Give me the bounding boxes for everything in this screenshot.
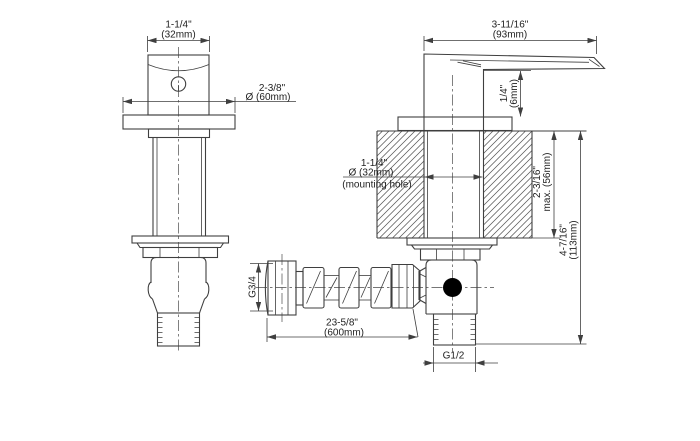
dim-mounting-hole-metric: Ø (32mm) [349,168,394,179]
backing-washer-side [407,238,497,245]
dim-lever-length: 3-11/16" (93mm) [424,20,597,55]
dim-handle-width-metric: (32mm) [161,30,195,41]
backing-washer-front [132,236,229,243]
hose-collar [296,272,303,306]
dim-wall-depth: 2-3/16" max. (56mm) [532,131,560,238]
lever-surface-marks [458,61,482,67]
dim-lever-length-metric: (93mm) [493,30,527,41]
mounting-nut-side [421,249,481,260]
dim-outlet-thread-value: G1/2 [443,351,465,362]
side-view [377,54,605,345]
escutcheon-base-front [149,129,210,138]
wall-hatch-right [484,132,532,238]
dim-outlet-thread: G1/2 [423,347,498,372]
dim-lever-clearance: 1/4" (6mm) [484,71,531,117]
hose-nut-g34 [265,261,296,315]
mounting-nut-front [143,248,218,258]
centerlines [179,47,495,352]
front-view [123,55,235,346]
dim-hose-nut-thread-value: G3/4 [248,276,259,298]
escutcheon-front [123,115,235,129]
body-cylinder-front [153,138,206,237]
dim-overall-depth-metric: (113mm) [569,220,580,259]
washer-lip-front [137,243,224,248]
escutcheon-side [398,117,512,131]
washer-lip-side [412,245,493,249]
outlet-thread-side [434,314,476,345]
technical-drawing-page: 1-1/4" (32mm) 2-3/8" Ø (60mm) 3-11/16" (… [0,0,700,441]
dim-hose-length: 23-5/8" (600mm) [267,309,418,342]
dim-mounting-hole-note: (mounting hole) [342,180,411,191]
supply-hose [265,261,426,315]
dim-wall-depth-metric: max. (56mm) [542,153,553,212]
dim-clearance-metric: (6mm) [509,79,520,108]
dim-hose-length-metric: (600mm) [324,328,364,339]
dim-escutcheon-metric: Ø (60mm) [246,92,291,103]
valve-body-side [419,260,477,314]
inlet-port-dot [443,278,462,297]
faucet-dimension-drawing: 1-1/4" (32mm) 2-3/8" Ø (60mm) 3-11/16" (… [0,0,700,441]
